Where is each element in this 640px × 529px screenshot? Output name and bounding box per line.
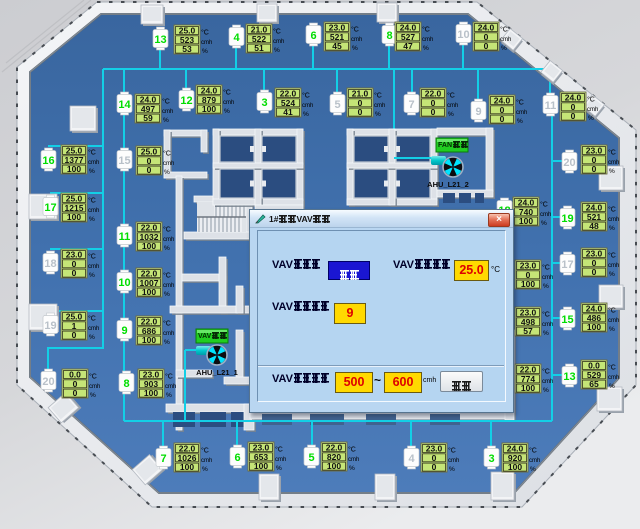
svg-text:100: 100 [142, 287, 156, 297]
svg-text:cmh: cmh [608, 318, 619, 324]
svg-text:100: 100 [521, 383, 535, 393]
svg-text:cmh: cmh [223, 100, 234, 106]
svg-text:cmh: cmh [89, 384, 100, 390]
svg-text:20: 20 [42, 376, 54, 388]
svg-text:5: 5 [334, 99, 340, 111]
svg-text:13: 13 [563, 371, 575, 383]
svg-text:9: 9 [475, 106, 481, 118]
svg-text:cmh: cmh [165, 384, 176, 390]
svg-text:4: 4 [408, 453, 415, 465]
svg-text:°C: °C [163, 320, 171, 328]
svg-text:°C: °C [275, 446, 283, 454]
svg-text:10: 10 [118, 277, 130, 289]
svg-text:51: 51 [254, 43, 264, 53]
svg-text:0: 0 [358, 107, 363, 117]
svg-text:59: 59 [143, 113, 153, 123]
svg-text:°C: °C [351, 26, 359, 34]
svg-text:8: 8 [386, 30, 392, 42]
svg-text:19: 19 [561, 213, 573, 225]
svg-text:100: 100 [587, 322, 601, 332]
svg-text:°C: °C [608, 252, 616, 260]
svg-text:cmh: cmh [163, 237, 174, 243]
svg-text:cmh: cmh [163, 331, 174, 337]
svg-text:°C: °C [374, 92, 382, 100]
svg-text:cmh: cmh [162, 109, 173, 115]
svg-text:11: 11 [119, 231, 131, 243]
svg-text:cmh: cmh [587, 107, 598, 113]
svg-text:°C: °C [587, 96, 595, 104]
svg-text:cmh: cmh [542, 322, 553, 328]
svg-text:8: 8 [123, 378, 129, 390]
svg-text:°C: °C [516, 99, 524, 107]
svg-text:%: % [543, 330, 549, 337]
svg-text:15: 15 [118, 155, 130, 167]
svg-text:cmh: cmh [163, 283, 174, 289]
svg-text:%: % [90, 392, 96, 399]
svg-text:18: 18 [44, 258, 56, 270]
svg-text:cmh: cmh [542, 379, 553, 385]
svg-text:7: 7 [408, 99, 414, 111]
svg-text:cmh: cmh [348, 457, 359, 463]
svg-text:48: 48 [589, 221, 599, 231]
svg-text:°C: °C [165, 373, 173, 381]
svg-text:cmh: cmh [374, 103, 385, 109]
svg-text:0: 0 [571, 111, 576, 121]
svg-text:20: 20 [563, 157, 575, 169]
svg-text:6: 6 [310, 30, 316, 42]
svg-text:100: 100 [142, 241, 156, 251]
svg-text:100: 100 [519, 216, 533, 226]
svg-text:%: % [202, 48, 208, 55]
svg-text:°C: °C [88, 197, 96, 205]
svg-text:100: 100 [67, 212, 81, 222]
svg-text:45: 45 [332, 41, 342, 51]
svg-text:cmh: cmh [88, 264, 99, 270]
svg-text:cmh: cmh [88, 208, 99, 214]
svg-text:AHU_L21_1: AHU_L21_1 [196, 368, 238, 377]
svg-text:100: 100 [521, 279, 535, 289]
svg-text:°C: °C [422, 26, 430, 34]
svg-text:0: 0 [431, 107, 436, 117]
svg-text:cmh: cmh [447, 103, 458, 109]
svg-text:%: % [349, 465, 355, 472]
svg-text:°C: °C [447, 92, 455, 100]
svg-text:%: % [517, 118, 523, 125]
svg-text:12: 12 [180, 95, 192, 107]
svg-text:%: % [164, 245, 170, 252]
svg-text:cmh: cmh [273, 39, 284, 45]
svg-text:cmh: cmh [608, 375, 619, 381]
svg-text:cmh: cmh [275, 457, 286, 463]
svg-text:%: % [89, 272, 95, 279]
svg-text:11: 11 [545, 100, 557, 112]
svg-text:100: 100 [142, 335, 156, 345]
svg-text:cmh: cmh [608, 217, 619, 223]
svg-text:%: % [609, 271, 615, 278]
svg-text:%: % [609, 326, 615, 333]
svg-text:%: % [89, 168, 95, 175]
svg-text:%: % [276, 465, 282, 472]
svg-text:%: % [541, 220, 547, 227]
svg-text:17: 17 [561, 259, 573, 271]
svg-text:%: % [164, 291, 170, 298]
svg-text:100: 100 [254, 461, 268, 471]
svg-text:°C: °C [163, 150, 171, 158]
svg-text:°C: °C [163, 226, 171, 234]
svg-text:7: 7 [160, 453, 166, 465]
svg-text:%: % [375, 111, 381, 118]
svg-text:0: 0 [432, 462, 437, 472]
svg-text:100: 100 [508, 462, 522, 472]
svg-text:cmh: cmh [302, 103, 313, 109]
svg-text:14: 14 [118, 99, 131, 111]
svg-text:cmh: cmh [448, 458, 459, 464]
svg-text:100: 100 [202, 104, 216, 114]
svg-text:15: 15 [561, 314, 573, 326]
svg-text:%: % [224, 108, 230, 115]
svg-text:%: % [609, 383, 615, 390]
svg-text:°C: °C [448, 447, 456, 455]
svg-text:41: 41 [283, 107, 293, 117]
svg-text:°C: °C [542, 264, 550, 272]
svg-text:°C: °C [273, 28, 281, 36]
svg-text:%: % [89, 334, 95, 341]
svg-text:%: % [449, 466, 455, 473]
svg-text:°C: °C [88, 253, 96, 261]
svg-text:%: % [303, 111, 309, 118]
svg-text:°C: °C [608, 206, 616, 214]
svg-text:AHU_L21_2: AHU_L21_2 [427, 180, 469, 189]
svg-text:53: 53 [182, 44, 192, 54]
svg-text:°C: °C [608, 307, 616, 315]
svg-text:%: % [423, 45, 429, 52]
svg-text:17: 17 [44, 202, 56, 214]
svg-text:%: % [163, 117, 169, 124]
svg-text:0: 0 [592, 164, 597, 174]
svg-text:5: 5 [308, 452, 314, 464]
svg-text:65: 65 [589, 379, 599, 389]
svg-text:3: 3 [261, 97, 267, 109]
svg-text:47: 47 [403, 41, 413, 51]
svg-text:%: % [164, 339, 170, 346]
svg-text:16: 16 [42, 155, 54, 167]
svg-text:10: 10 [457, 29, 469, 41]
svg-text:cmh: cmh [608, 160, 619, 166]
svg-text:9: 9 [121, 325, 127, 337]
svg-text:%: % [89, 216, 95, 223]
svg-text:0: 0 [500, 114, 505, 124]
svg-text:°C: °C [542, 311, 550, 319]
svg-text:°C: °C [201, 447, 209, 455]
svg-text:0: 0 [484, 41, 489, 51]
svg-text:°C: °C [348, 446, 356, 454]
svg-text:19: 19 [44, 320, 56, 332]
svg-text:%: % [166, 392, 172, 399]
svg-text:%: % [609, 225, 615, 232]
svg-text:0: 0 [72, 330, 77, 340]
svg-text:°C: °C [88, 149, 96, 157]
svg-text:°C: °C [88, 315, 96, 323]
svg-text:%: % [609, 168, 615, 175]
svg-text:°C: °C [163, 272, 171, 280]
svg-text:cmh: cmh [516, 110, 527, 116]
svg-text:%: % [501, 45, 507, 52]
svg-text:cmh: cmh [542, 275, 553, 281]
svg-text:°C: °C [500, 26, 508, 34]
svg-text:0: 0 [72, 268, 77, 278]
svg-text:cmh: cmh [500, 37, 511, 43]
svg-text:%: % [274, 47, 280, 54]
svg-text:cmh: cmh [88, 160, 99, 166]
svg-text:%: % [448, 111, 454, 118]
svg-text:°C: °C [201, 29, 209, 37]
svg-text:°C: °C [89, 373, 97, 381]
svg-text:%: % [588, 115, 594, 122]
svg-text:°C: °C [529, 447, 537, 455]
svg-text:%: % [352, 45, 358, 52]
svg-text:4: 4 [233, 32, 240, 44]
svg-text:100: 100 [67, 164, 81, 174]
svg-text:%: % [530, 466, 536, 473]
svg-text:cmh: cmh [88, 326, 99, 332]
svg-text:6: 6 [234, 452, 240, 464]
svg-text:100: 100 [180, 462, 194, 472]
svg-text:cmh: cmh [422, 37, 433, 43]
svg-text:%: % [164, 169, 170, 176]
svg-text:%: % [543, 387, 549, 394]
svg-text:13: 13 [154, 34, 166, 46]
svg-text:%: % [543, 283, 549, 290]
svg-text:0: 0 [592, 267, 597, 277]
svg-text:°C: °C [608, 149, 616, 157]
svg-text:°C: °C [302, 92, 310, 100]
svg-text:cmh: cmh [163, 161, 174, 167]
svg-text:57: 57 [523, 326, 533, 336]
svg-text:100: 100 [144, 388, 158, 398]
svg-text:cmh: cmh [540, 212, 551, 218]
svg-text:cmh: cmh [201, 40, 212, 46]
svg-text:°C: °C [162, 98, 170, 106]
svg-text:%: % [202, 466, 208, 473]
svg-text:cmh: cmh [608, 263, 619, 269]
svg-text:°C: °C [608, 364, 616, 372]
svg-text:cmh: cmh [529, 458, 540, 464]
svg-text:°C: °C [542, 368, 550, 376]
svg-text:cmh: cmh [351, 37, 362, 43]
svg-text:cmh: cmh [201, 458, 212, 464]
svg-text:0: 0 [73, 388, 78, 398]
svg-text:°C: °C [223, 89, 231, 97]
svg-text:°C: °C [540, 201, 548, 209]
svg-text:100: 100 [327, 461, 341, 471]
svg-text:0: 0 [147, 165, 152, 175]
svg-text:3: 3 [488, 453, 494, 465]
